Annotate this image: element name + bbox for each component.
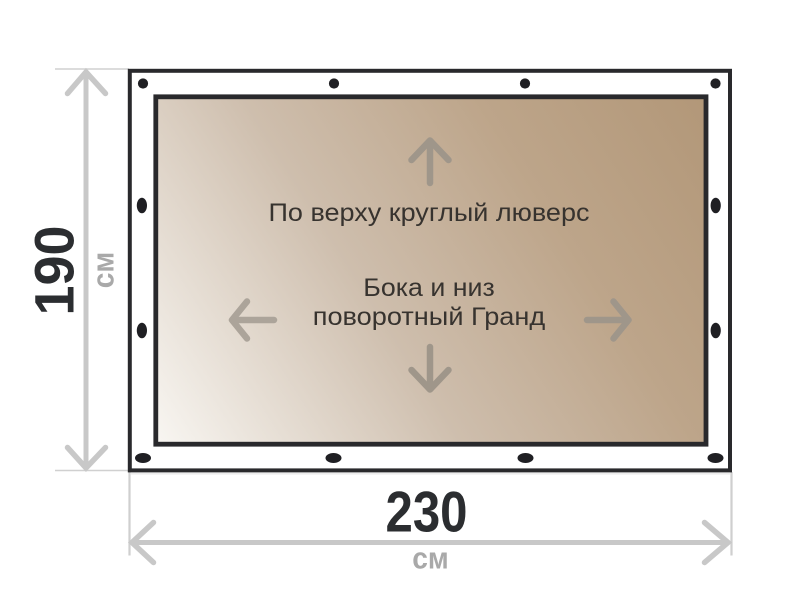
svg-text:поворотный Гранд: поворотный Гранд [313,303,546,331]
svg-text:Бока и низ: Бока и низ [363,274,495,302]
svg-text:По верху круглый люверс: По верху круглый люверс [269,199,590,227]
svg-text:190: 190 [24,226,86,316]
svg-text:230: 230 [386,481,468,545]
svg-text:см: см [412,540,449,575]
svg-text:см: см [86,252,121,289]
